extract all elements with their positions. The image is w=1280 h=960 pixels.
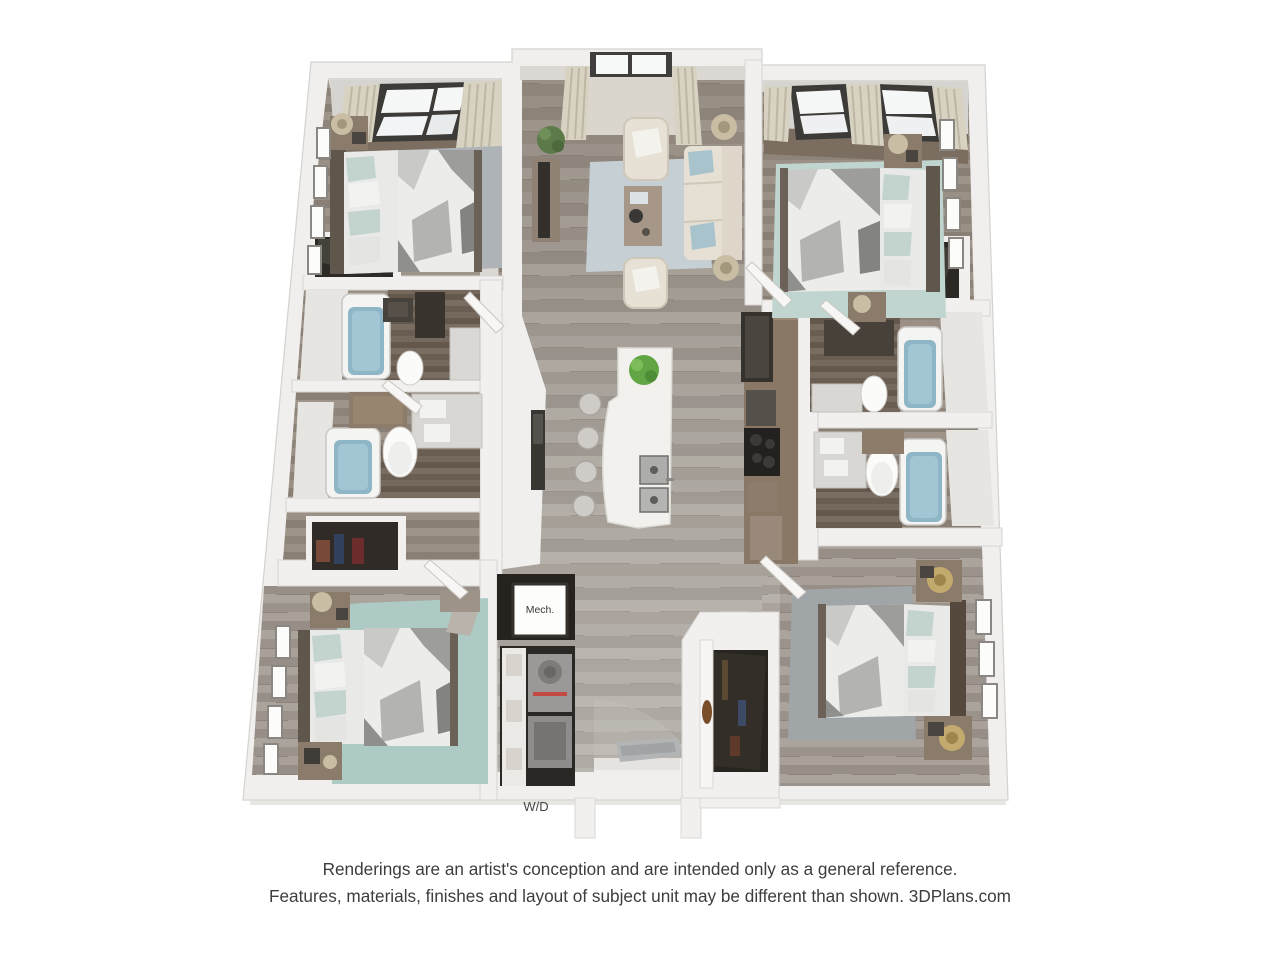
svg-text:W/D: W/D [523,799,548,814]
svg-text:Mech.: Mech. [526,604,555,616]
